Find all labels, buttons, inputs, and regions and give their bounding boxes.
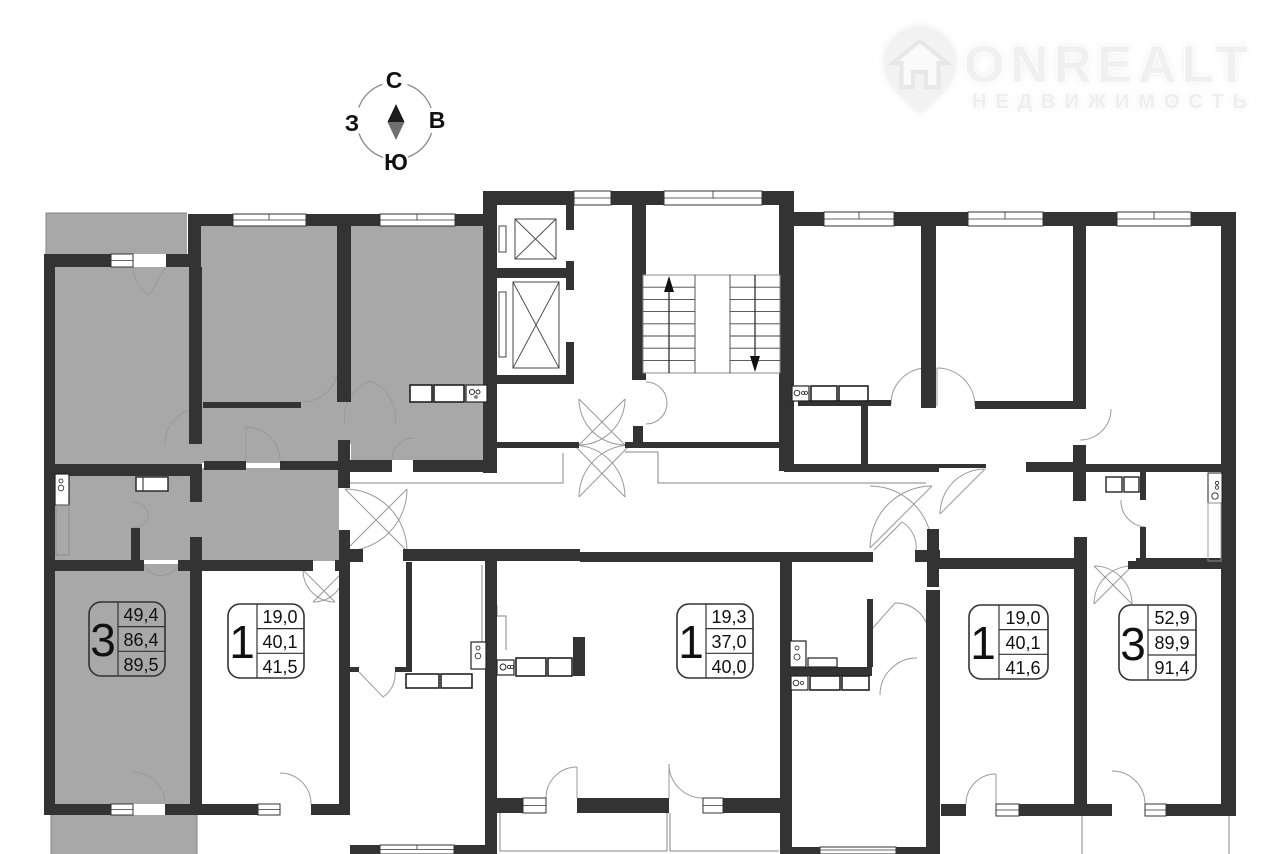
svg-text:89,5: 89,5 bbox=[123, 655, 158, 675]
svg-text:19,0: 19,0 bbox=[262, 607, 297, 627]
svg-text:З: З bbox=[345, 110, 359, 136]
svg-text:1: 1 bbox=[229, 616, 255, 668]
svg-text:Ю: Ю bbox=[384, 149, 408, 175]
svg-text:49,4: 49,4 bbox=[123, 605, 158, 625]
svg-text:41,5: 41,5 bbox=[262, 657, 297, 677]
svg-text:52,9: 52,9 bbox=[1154, 608, 1189, 628]
svg-text:С: С bbox=[386, 67, 403, 93]
svg-text:3: 3 bbox=[1120, 618, 1146, 670]
svg-text:91,4: 91,4 bbox=[1154, 658, 1189, 678]
svg-text:89,9: 89,9 bbox=[1154, 633, 1189, 653]
svg-text:41,6: 41,6 bbox=[1005, 658, 1040, 678]
svg-text:1: 1 bbox=[970, 617, 996, 669]
svg-text:37,0: 37,0 bbox=[711, 632, 746, 652]
svg-text:19,3: 19,3 bbox=[711, 607, 746, 627]
svg-text:40,1: 40,1 bbox=[1005, 633, 1040, 653]
svg-text:НЕДВИЖИМОСТЬ: НЕДВИЖИМОСТЬ bbox=[972, 91, 1256, 113]
svg-text:В: В bbox=[429, 107, 446, 133]
svg-text:ONREALT: ONREALT bbox=[964, 36, 1253, 94]
svg-text:3: 3 bbox=[90, 614, 116, 666]
svg-text:40,1: 40,1 bbox=[262, 632, 297, 652]
svg-text:19,0: 19,0 bbox=[1005, 608, 1040, 628]
svg-text:86,4: 86,4 bbox=[123, 630, 158, 650]
svg-text:40,0: 40,0 bbox=[711, 657, 746, 677]
svg-text:1: 1 bbox=[678, 616, 704, 668]
